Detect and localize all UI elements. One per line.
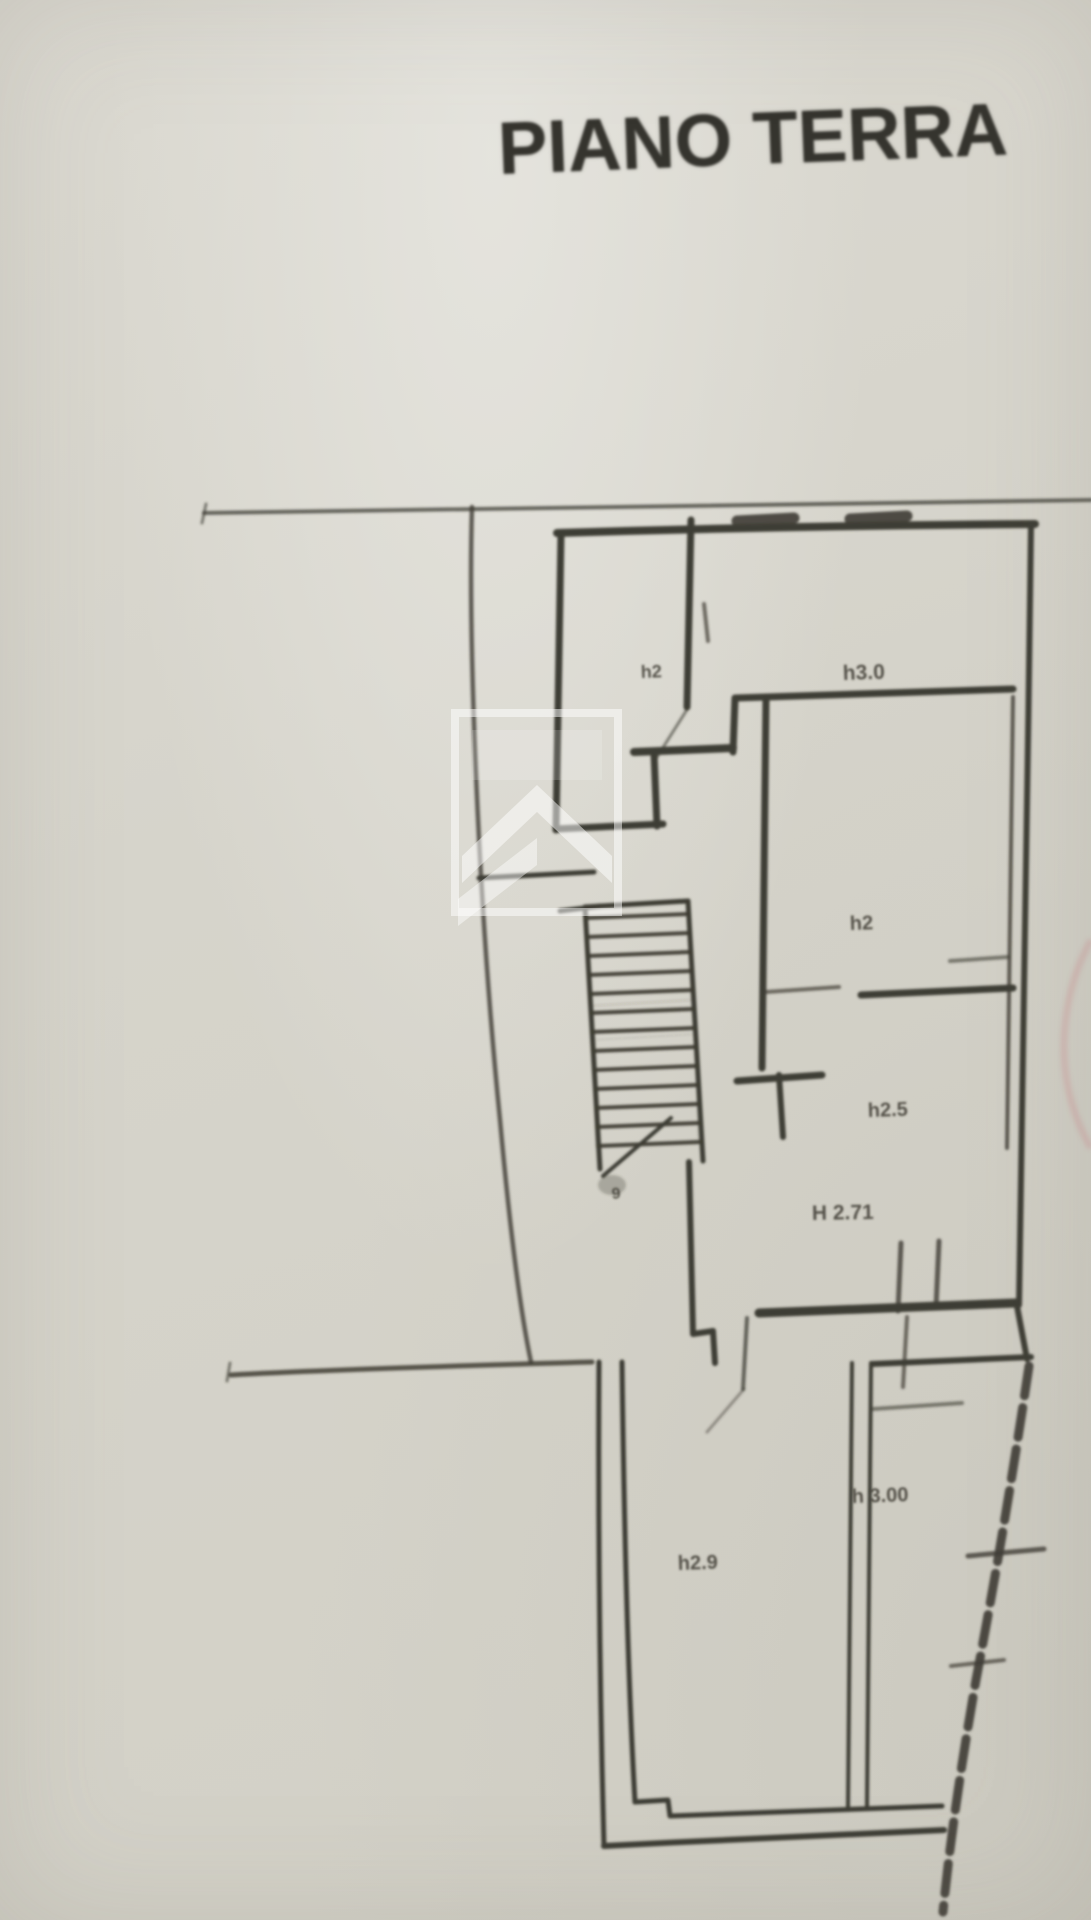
door-leaf: [903, 1317, 907, 1387]
lower-left-outer-wall: [599, 1362, 604, 1846]
lower-bottom-outer-wall: [604, 1830, 944, 1846]
wall-segment: [898, 1243, 901, 1311]
stair-steps: [586, 914, 700, 1146]
staircase: [560, 901, 703, 1195]
wall-segment: [779, 1075, 783, 1137]
room-height-label-7: h2.9: [677, 1552, 718, 1575]
wall-segment: [227, 1363, 230, 1381]
door-leaf: [743, 1318, 747, 1389]
right-outer-wall: [1019, 527, 1031, 1305]
wall-segment: [693, 1331, 713, 1334]
door-leaf: [766, 987, 839, 992]
wall-segment: [689, 1162, 693, 1333]
room-height-label-2: h3.0: [842, 661, 885, 685]
wall-segment: [762, 698, 766, 1068]
wall-segment: [733, 698, 735, 752]
door-leaf: [873, 1403, 962, 1409]
room-height-label-5: H 2.71: [812, 1201, 875, 1225]
right-inner-wall: [1007, 697, 1013, 1148]
left-boundary-line: [471, 507, 531, 1362]
corridor-wall: [848, 1363, 852, 1808]
wall-segment: [936, 1241, 939, 1308]
wall-segment: [202, 504, 206, 523]
room-height-label-4: h2.5: [867, 1099, 908, 1122]
room-height-label-6: h 3.00: [851, 1484, 908, 1508]
walls-layer: [202, 500, 1091, 1912]
pink-pen-mark: [1064, 940, 1091, 1148]
gate-post: [737, 518, 794, 521]
floorplan-drawing: h2h3.0h2h2.5H 2.71h 3.00h2.99: [0, 0, 1091, 1920]
wall-tick: [968, 1549, 1044, 1556]
wall-segment: [585, 907, 600, 1169]
wall-segment: [1017, 1306, 1027, 1359]
lower-boundary-line: [231, 1362, 592, 1375]
stair-mark-label: 9: [611, 1185, 621, 1203]
room-height-label-1: h2: [640, 661, 662, 682]
wall-segment: [687, 520, 691, 707]
door-leaf: [950, 957, 1008, 961]
upper-bottom-wall: [759, 1303, 1016, 1313]
wall-segment: [713, 1331, 715, 1363]
lower-left-inner-wall: [622, 1362, 635, 1802]
wall-segment: [654, 753, 657, 826]
door-swing: [707, 1389, 744, 1432]
corridor-wall: [867, 1363, 871, 1806]
curved-right-wall: [943, 1366, 1029, 1912]
door-hinge-mark: [704, 604, 708, 641]
wall-segment: [736, 689, 1013, 698]
wall-segment: [556, 533, 561, 830]
wall-segment: [634, 748, 733, 752]
room-height-label-3: h2: [849, 912, 873, 935]
watermark-band: [472, 730, 602, 780]
wall-segment: [861, 988, 1013, 995]
upper-top-wall: [557, 524, 1035, 533]
floorplan-photo: PIANO TERRA: [0, 0, 1091, 1920]
wall-segment: [872, 1357, 1031, 1364]
watermark-chevron-icon: [462, 785, 612, 883]
street-boundary-line: [204, 500, 1091, 513]
lower-bottom-inner-wall: [635, 1800, 942, 1816]
gate-post: [850, 516, 907, 519]
